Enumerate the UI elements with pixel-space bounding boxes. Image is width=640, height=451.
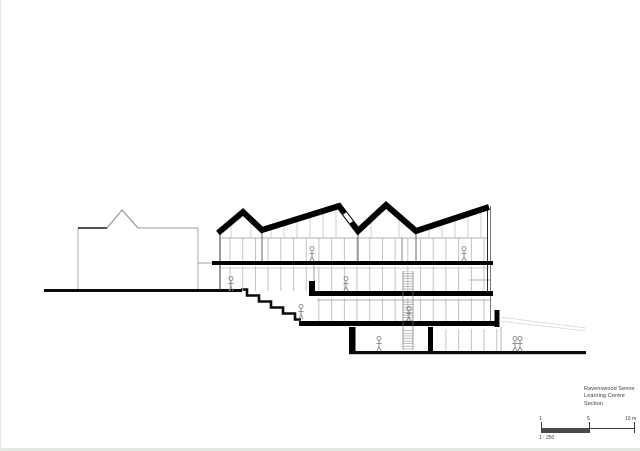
ground-slab: [349, 351, 586, 354]
person-icon: [376, 337, 381, 352]
ground-steps: [241, 290, 301, 320]
roof-glazing-stripe: [345, 214, 352, 223]
section-drawing: [1, 0, 640, 451]
project-title-line1: Ravenswood Senior: [584, 386, 640, 393]
person-icon: [512, 337, 517, 352]
scale-bar-filled-segment: [541, 428, 589, 433]
drawing-name: Section: [584, 401, 640, 408]
floor-slab-upper: [212, 261, 493, 265]
scale-ratio: 1 : 250: [539, 435, 554, 441]
roof: [218, 205, 489, 233]
floor-slab-mid: [314, 291, 493, 296]
basement-wall-mid: [428, 327, 433, 352]
scale-bar: 1 5 10 m 1 : 250: [537, 416, 640, 444]
scale-bar-open-segment: [589, 428, 634, 429]
title-block: Ravenswood Senior Learning Centre Sectio…: [584, 386, 640, 408]
slab-mid-parapet: [309, 281, 315, 296]
person-icon: [298, 305, 303, 320]
project-title-line2: Learning Centre: [584, 393, 640, 400]
drawing-sheet: Ravenswood Senior Learning Centre Sectio…: [0, 0, 640, 451]
person-icon: [517, 337, 522, 352]
floor-slab-lower: [299, 321, 499, 326]
scale-tick: [634, 422, 635, 433]
background-building: [78, 210, 198, 290]
basement-wall-left: [349, 327, 356, 352]
terrace-lines: [499, 317, 586, 331]
slab-lower-parapet: [495, 310, 500, 327]
